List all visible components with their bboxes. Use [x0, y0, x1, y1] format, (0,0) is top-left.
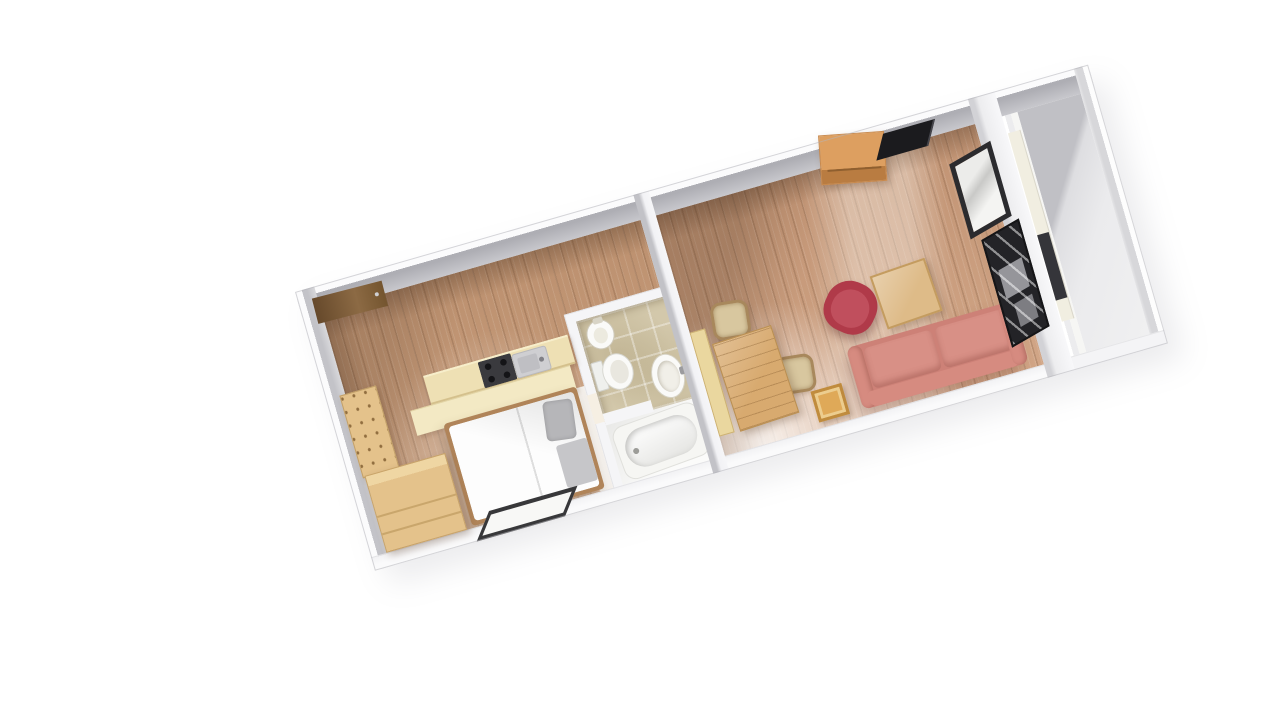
bed-pillow	[542, 398, 577, 442]
apartment-plan	[295, 65, 1168, 571]
floorplan-canvas	[0, 0, 1280, 720]
